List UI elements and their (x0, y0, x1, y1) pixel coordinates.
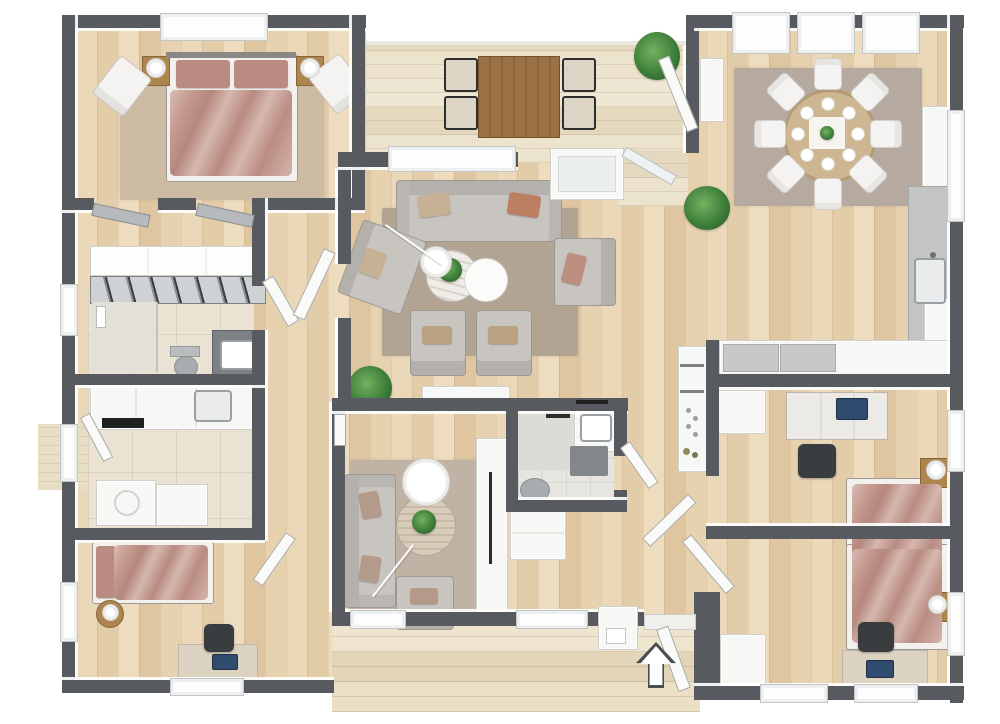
den-table-plant (412, 510, 436, 534)
porch-bench-box (606, 628, 626, 644)
living-window (388, 146, 516, 172)
bedroom2-office-chair (204, 624, 234, 652)
den-door-leaf (334, 414, 346, 446)
dining-plate (800, 148, 814, 162)
hall-sliding-closet (90, 276, 266, 304)
den-tv-cabinet (476, 438, 508, 622)
den-floor-lamp-shade (402, 458, 450, 506)
bedroom2-bottom-window (170, 678, 244, 696)
hallway-closet-door-1 (723, 344, 779, 372)
den-tv-cabinet-handle (489, 472, 492, 564)
wall-living-left-a (338, 168, 351, 264)
kitchen-sink (914, 258, 946, 304)
bathroom2-sink (580, 414, 612, 442)
bedroom4-bottom-window-1 (760, 684, 828, 703)
living-coffee-table-white (464, 258, 508, 302)
terrace-landing-inner (558, 156, 616, 192)
bathroom2-toilet-bowl (520, 478, 550, 502)
bedroom3-lamp (926, 460, 946, 480)
dining-chair-s (814, 178, 842, 210)
bathroom2-shower (518, 410, 578, 470)
dining-plate (821, 97, 835, 111)
master-lamp-right (300, 58, 320, 78)
bedroom2-lamp (102, 604, 119, 621)
bedroom3-office-chair (798, 444, 836, 478)
master-lamp-left (146, 58, 166, 78)
dining-chair-w (754, 120, 786, 148)
master-bed-pillow-left (176, 60, 230, 88)
dining-chair-e (870, 120, 902, 148)
dining-window-2 (797, 12, 855, 54)
oven-knob-2 (693, 416, 698, 421)
wall-bedroom3-top (706, 374, 950, 387)
master-bed-blanket (170, 90, 292, 176)
den-bottom-window-1 (350, 610, 406, 629)
wall-bath2-left (506, 410, 518, 500)
wall-hall-top-a (62, 198, 94, 210)
terrace-chair-bl (444, 96, 478, 130)
dining-tall-cabinet (700, 58, 724, 122)
bathroom2-mat (570, 446, 608, 476)
dining-centerpiece-plant (820, 126, 834, 140)
terrace-chair-tr (562, 58, 596, 92)
kitchen-bottle-1 (683, 448, 690, 455)
wall-bath2-bottom (506, 500, 627, 512)
wall-bottom-right (694, 686, 964, 700)
dining-window-3 (862, 12, 920, 54)
bathroom1-window (60, 284, 78, 336)
oven-handle-2 (680, 390, 704, 393)
wall-entry-right-block (694, 592, 720, 688)
wall-bath1-bottom (75, 374, 265, 385)
living-armchair-bl-pillow (422, 326, 452, 344)
floor-plan (0, 0, 1000, 724)
master-bed-pillow-right (234, 60, 288, 88)
terrace-chair-br (562, 96, 596, 130)
bedroom2-left-window (60, 582, 78, 642)
bathroom2-dresser-below (510, 506, 566, 560)
terrace-chair-tl (444, 58, 478, 92)
bathroom2-shower-fittings (546, 412, 570, 418)
dining-plate (842, 106, 856, 120)
bathroom2-towel-bar (576, 400, 608, 404)
terrace-outdoor-table (478, 56, 560, 138)
wall-bed3-bed4-divider (706, 526, 950, 539)
bedroom2-laptop (212, 654, 238, 670)
wall-suite-right-a (252, 198, 265, 286)
bedroom4-right-window (947, 592, 965, 656)
dining-floor-plant (684, 186, 730, 230)
wall-kitchen-column (706, 340, 719, 476)
living-armchair-br-pillow (488, 326, 518, 344)
dining-plate (791, 127, 805, 141)
utility-cabinet (156, 484, 208, 526)
entry-porch-floor (332, 626, 700, 712)
wall-living-left-b (338, 318, 351, 402)
living-sofa-pillow-rust (507, 192, 542, 218)
dining-window-1 (732, 12, 790, 54)
bedroom2-blanket (114, 545, 208, 600)
oven-knob-3 (686, 424, 691, 429)
bedroom4-lamp (928, 595, 947, 614)
bedroom4-office-chair (858, 622, 894, 652)
kitchenette-sink (194, 390, 232, 422)
dining-chair-n (814, 58, 842, 90)
den-armchair-pillow (410, 588, 438, 604)
master-window (160, 13, 268, 41)
dining-plate (851, 127, 865, 141)
oven-knob-4 (693, 432, 698, 437)
wall-utility-bottom (75, 528, 265, 540)
front-door-threshold (644, 614, 696, 630)
hallway-closet-door-2 (780, 344, 836, 372)
wall-master-right (352, 15, 365, 211)
oven-knob-1 (686, 408, 691, 413)
bedroom3-dresser (716, 390, 766, 434)
kitchenette-cooktop (102, 418, 144, 428)
oven-handle-1 (680, 364, 704, 367)
side-deck-door (60, 424, 78, 482)
bedroom3-window (947, 410, 965, 472)
bathroom1-shower-fittings (96, 306, 106, 328)
bedroom4-bottom-window-2 (854, 684, 918, 703)
den-bottom-window-2 (516, 610, 588, 629)
dining-plate (800, 106, 814, 120)
bedroom2-pillow (96, 546, 116, 598)
right-wall-window-top (947, 110, 965, 222)
den-sofa-pillow-top (358, 490, 382, 519)
bedroom4-dresser (720, 634, 766, 690)
wall-suite-right-b (252, 330, 265, 541)
wall-hall-top-b (158, 198, 196, 210)
kitchen-faucet (930, 252, 936, 258)
utility-washer-door (114, 490, 140, 516)
master-bed-headboard (166, 52, 296, 58)
dining-plate (821, 157, 835, 171)
bedroom4-laptop (866, 660, 894, 678)
wall-terrace-right (686, 45, 699, 153)
dining-plate (842, 148, 856, 162)
living-sofa-pillow-beige (417, 192, 452, 218)
bedroom3-laptop (836, 398, 868, 420)
kitchen-bottle-2 (692, 452, 698, 458)
hall-wardrobe (90, 246, 266, 276)
den-sofa-pillow-bottom (358, 555, 381, 584)
